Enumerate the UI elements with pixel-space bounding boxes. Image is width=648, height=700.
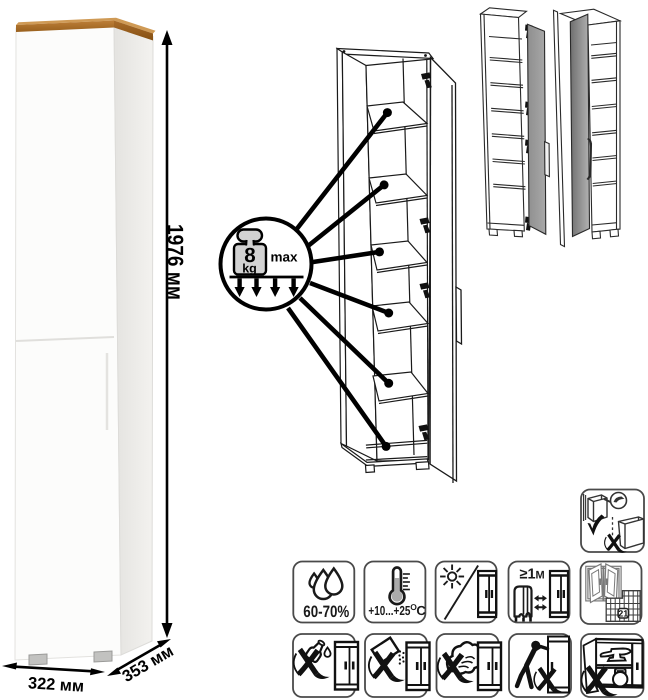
svg-text:+10...+25: +10...+25 [368, 603, 410, 618]
svg-text:60-70%: 60-70% [303, 603, 349, 621]
svg-text:kg: kg [242, 262, 257, 276]
svg-text:21: 21 [618, 609, 628, 619]
svg-text:max: max [270, 250, 298, 265]
svg-text:322 мм: 322 мм [28, 674, 85, 695]
svg-text:1976 мм: 1976 мм [163, 224, 188, 300]
svg-text:C: C [416, 603, 426, 618]
svg-text:≥1M: ≥1M [520, 567, 545, 583]
